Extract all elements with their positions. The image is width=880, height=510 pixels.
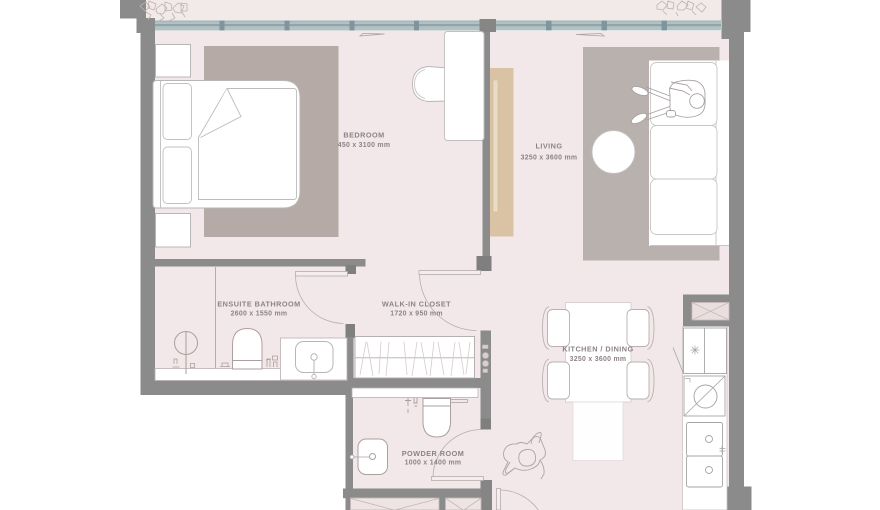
svg-text:1720 x 950 mm: 1720 x 950 mm: [390, 311, 443, 318]
svg-text:450 x 3100 mm: 450 x 3100 mm: [338, 142, 391, 149]
svg-text:2600 x 1550 mm: 2600 x 1550 mm: [231, 311, 288, 318]
svg-text:KITCHEN / DINING: KITCHEN / DINING: [562, 345, 633, 354]
svg-text:POWDER ROOM: POWDER ROOM: [402, 449, 465, 458]
svg-text:BEDROOM: BEDROOM: [343, 131, 384, 140]
svg-text:3250 x 3600 mm: 3250 x 3600 mm: [570, 356, 627, 363]
svg-text:LIVING: LIVING: [535, 142, 562, 151]
svg-text:WALK-IN CLOSET: WALK-IN CLOSET: [382, 300, 451, 309]
svg-text:3250 x 3600 mm: 3250 x 3600 mm: [521, 155, 578, 162]
svg-text:1000 x 1400 mm: 1000 x 1400 mm: [405, 460, 462, 467]
svg-text:ENSUITE BATHROOM: ENSUITE BATHROOM: [217, 300, 300, 309]
